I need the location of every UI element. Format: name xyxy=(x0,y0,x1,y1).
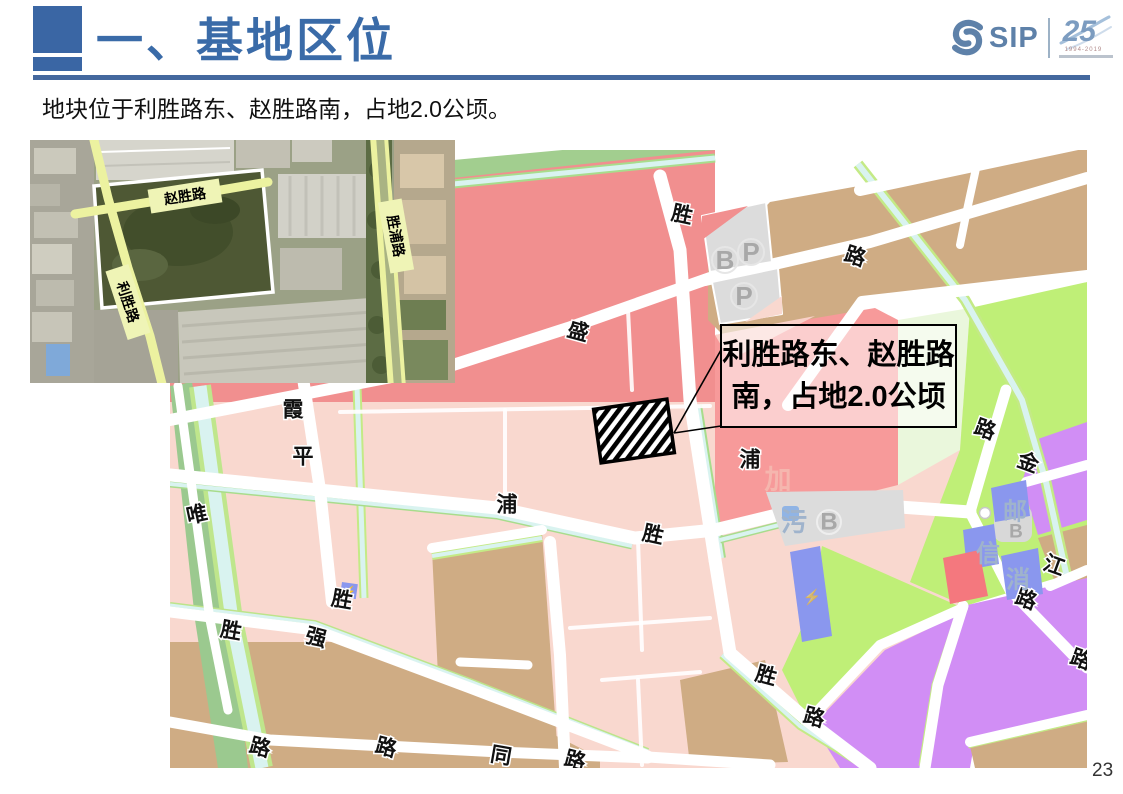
anniversary-mark: 25 1994-2019 xyxy=(1057,15,1108,61)
page-number: 23 xyxy=(1092,760,1113,782)
title-accent-square xyxy=(33,6,82,53)
sip-logo: SIP 25 1994-2019 xyxy=(948,12,1108,64)
sip-swirl-icon xyxy=(948,15,987,61)
satellite-canvas: 赵胜路 利胜路 胜浦路 xyxy=(30,140,455,383)
satellite-inset: 赵胜路 利胜路 胜浦路 xyxy=(30,140,455,383)
sewage-icon xyxy=(782,506,799,521)
callout-line-1: 利胜路东、赵胜路 xyxy=(722,334,955,376)
callout-line-2: 南，占地2.0公顷 xyxy=(722,376,955,418)
title-accent-bar xyxy=(33,57,82,71)
slide-page: 一、基地区位 地块位于利胜路东、赵胜路南，占地2.0公顷。 SIP 25 199… xyxy=(0,0,1123,794)
anniversary-number: 25 xyxy=(1063,15,1096,49)
site-hatch-marker xyxy=(594,399,675,463)
page-title: 一、基地区位 xyxy=(96,2,396,71)
anniversary-years: 1994-2019 xyxy=(1065,47,1103,53)
logo-microtext-bar xyxy=(1059,55,1113,58)
title-divider-line xyxy=(33,75,1090,80)
sip-logo-text: SIP xyxy=(989,22,1039,55)
site-callout-box: 利胜路东、赵胜路 南，占地2.0公顷 xyxy=(720,324,957,428)
logo-divider xyxy=(1048,18,1050,58)
junction-dot xyxy=(980,508,991,519)
subtitle-text: 地块位于利胜路东、赵胜路南，占地2.0公顷。 xyxy=(42,90,511,124)
